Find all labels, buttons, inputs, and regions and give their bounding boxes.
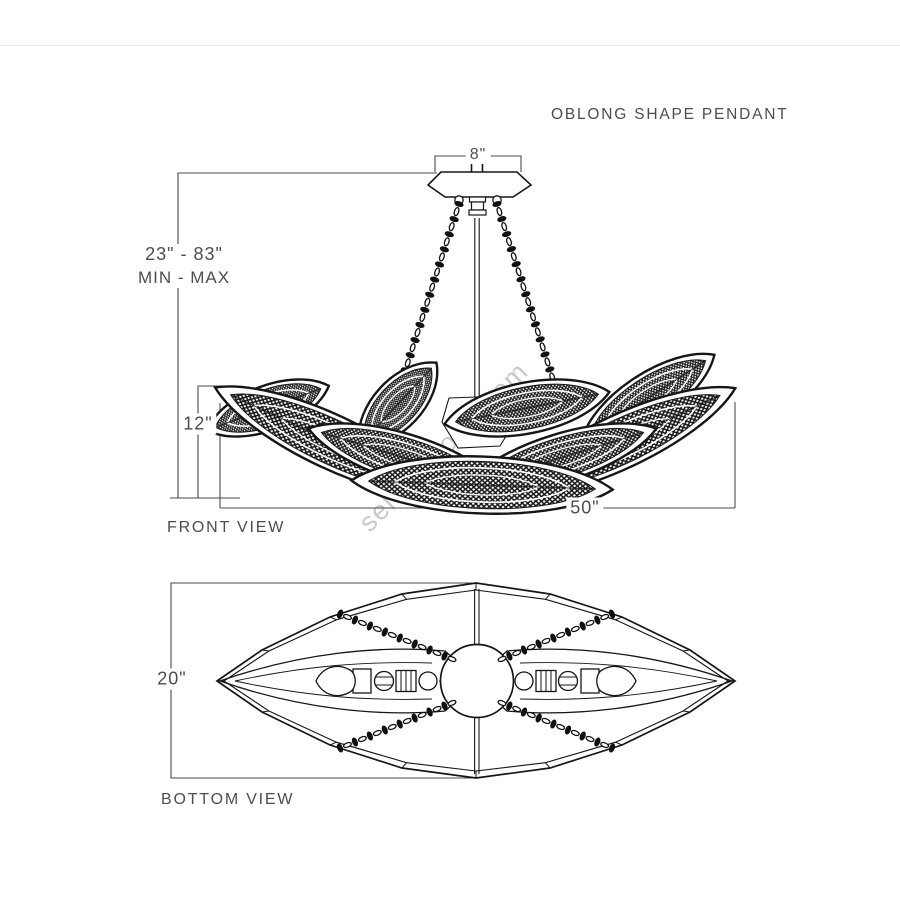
dim-bowl-height: 12" (179, 414, 216, 435)
bead-circle (375, 672, 394, 691)
bottom-view-label: BOTTOM VIEW (161, 791, 294, 809)
dim-height-range: 23" - 83" MIN - MAX (134, 244, 234, 288)
dim-canopy-width: 8" (466, 146, 491, 164)
leaf-bowl (199, 335, 746, 521)
bead-circle (559, 672, 578, 691)
dim-height-range-value: 23" - 83" (145, 244, 223, 264)
pendant-technical-drawing (0, 0, 900, 900)
collar-top (470, 197, 486, 202)
collar-mid (472, 202, 484, 210)
dim-depth: 20" (153, 669, 190, 690)
dim-width: 50" (566, 498, 603, 519)
bead-circle (419, 672, 437, 690)
front-view-drawing (170, 156, 747, 521)
dim-12-bracket (198, 386, 228, 498)
bead-circle (515, 672, 533, 690)
canopy (428, 172, 531, 197)
collar-low (469, 210, 486, 215)
center-circle (441, 645, 514, 718)
front-view-label: FRONT VIEW (167, 519, 285, 537)
bottom-view-drawing (171, 583, 735, 778)
spec-sheet-page: OBLONG SHAPE PENDANT select-world.com (0, 0, 900, 900)
bottom-view-center (441, 589, 514, 774)
dim-height-range-caption: MIN - MAX (138, 268, 230, 288)
